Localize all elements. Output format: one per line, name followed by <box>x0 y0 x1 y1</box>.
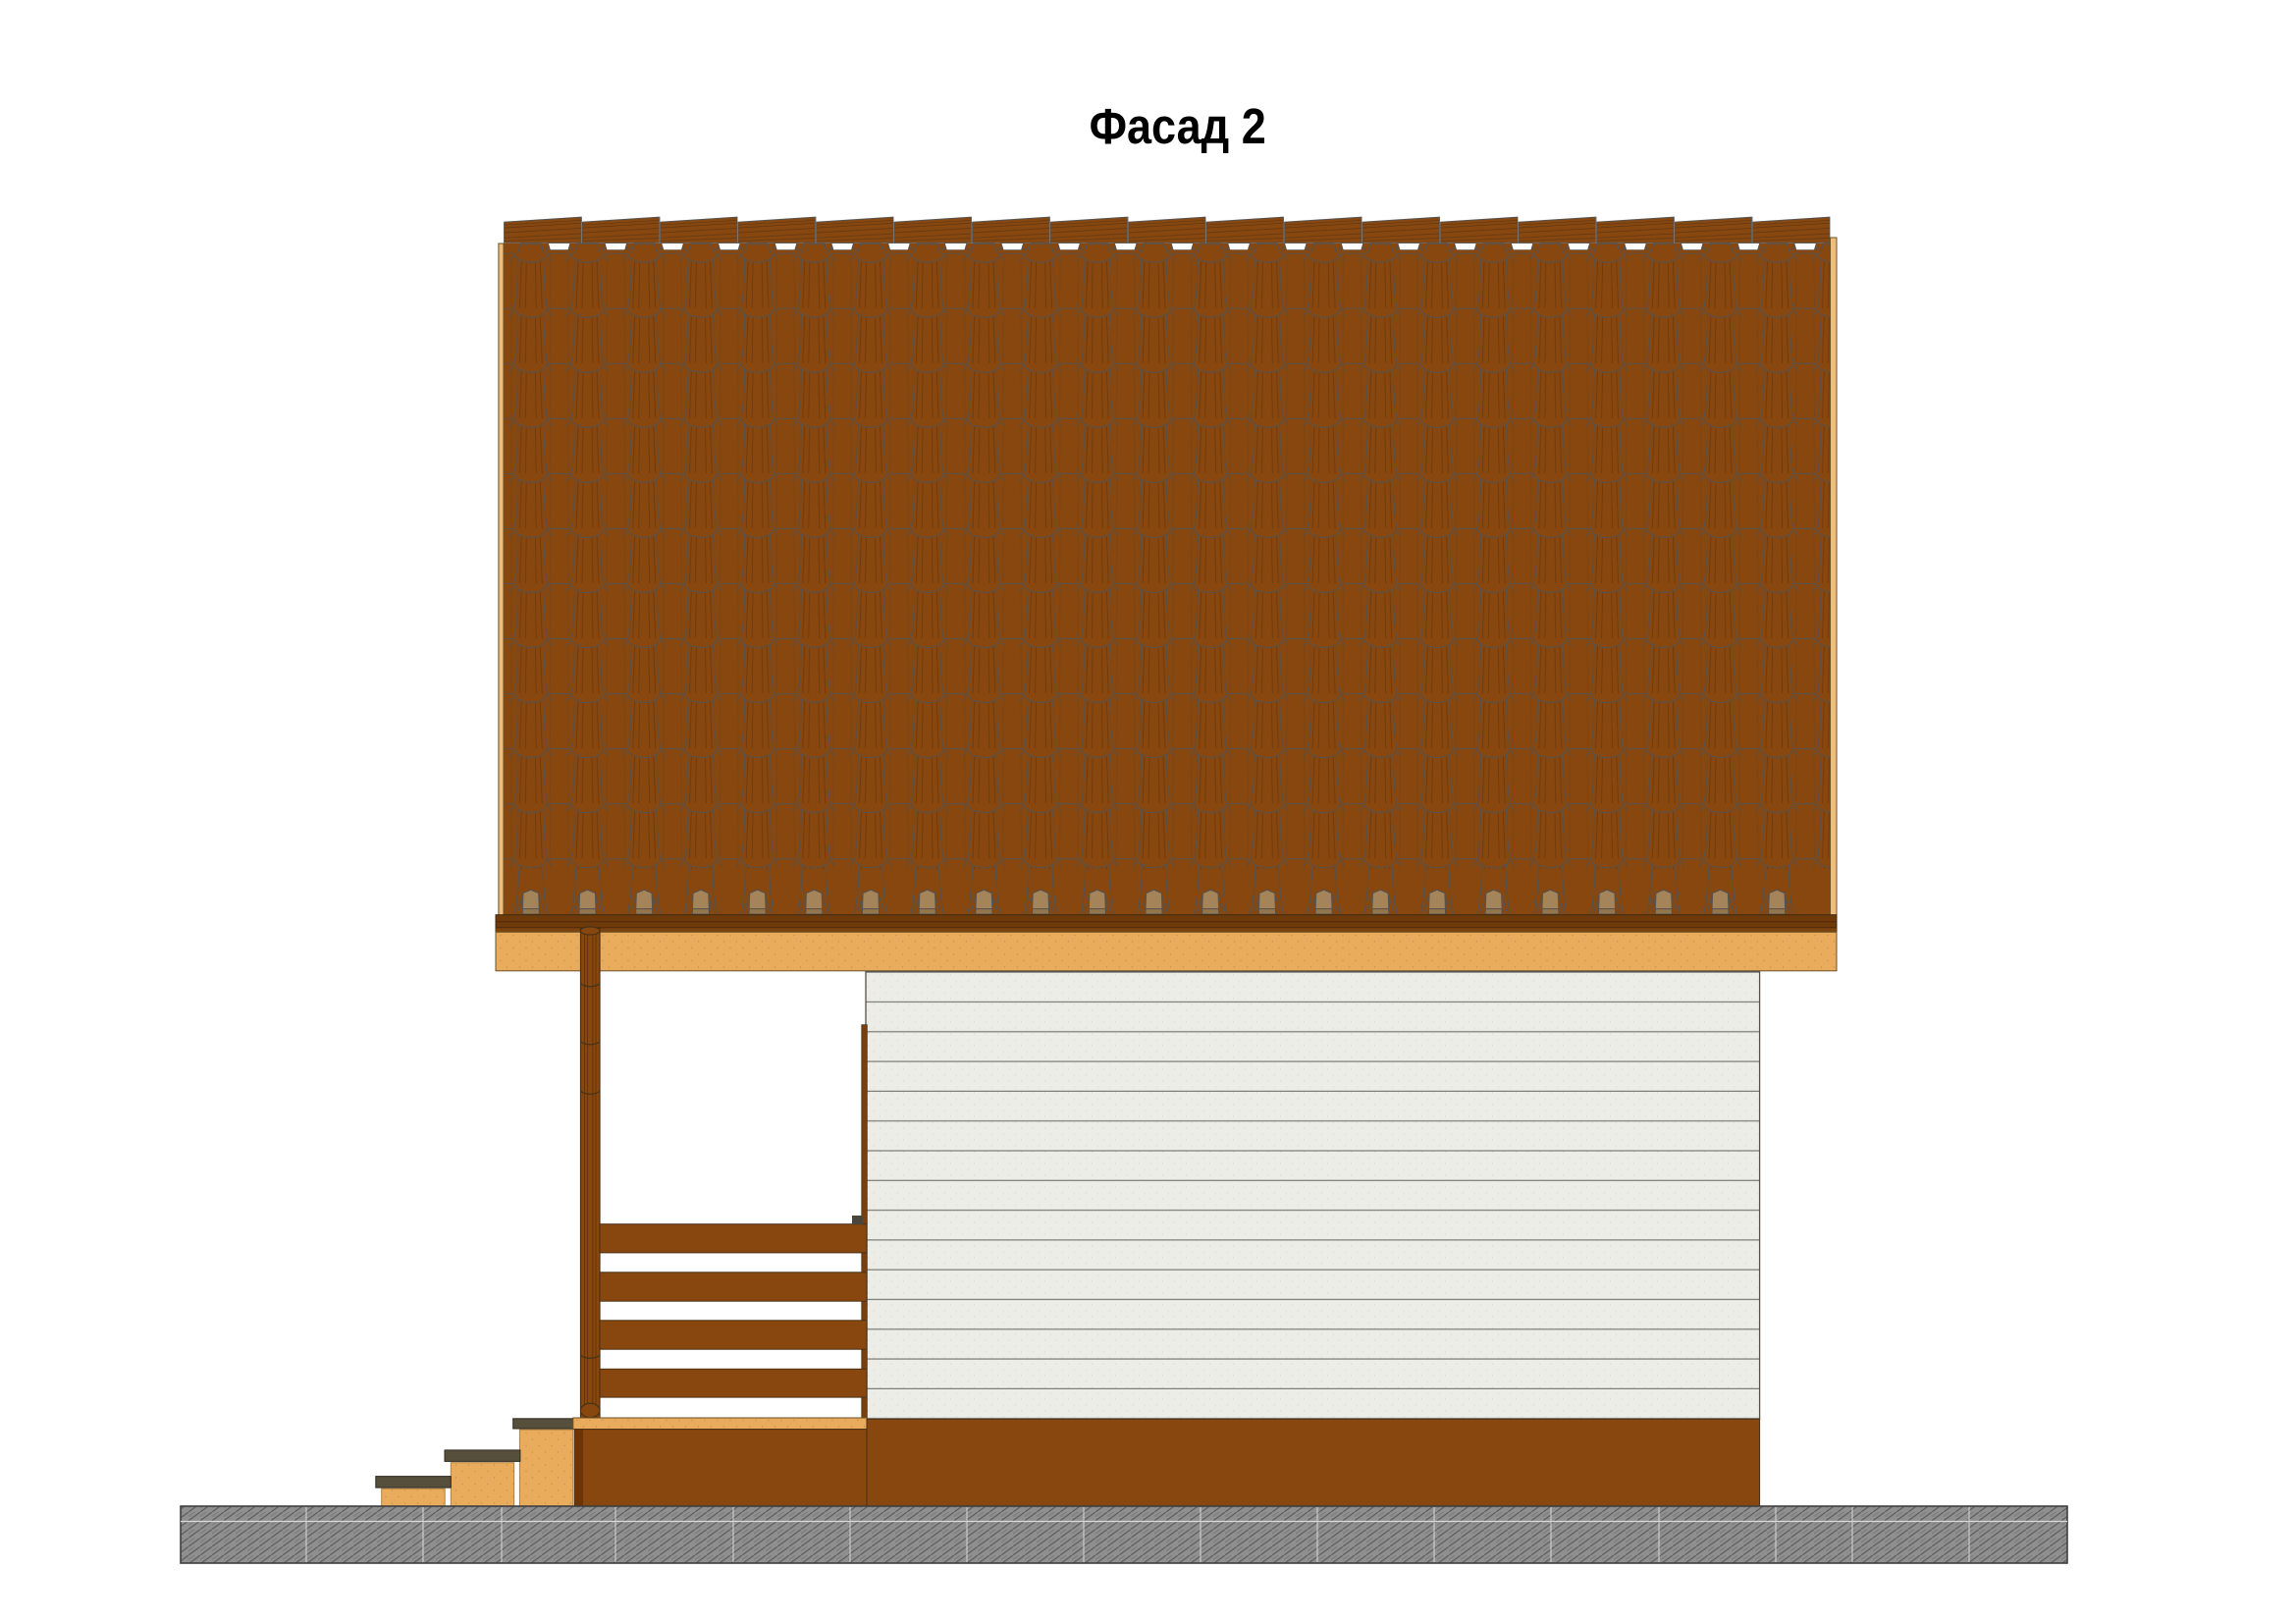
svg-text:Фасад 2: Фасад 2 <box>1090 98 1266 154</box>
